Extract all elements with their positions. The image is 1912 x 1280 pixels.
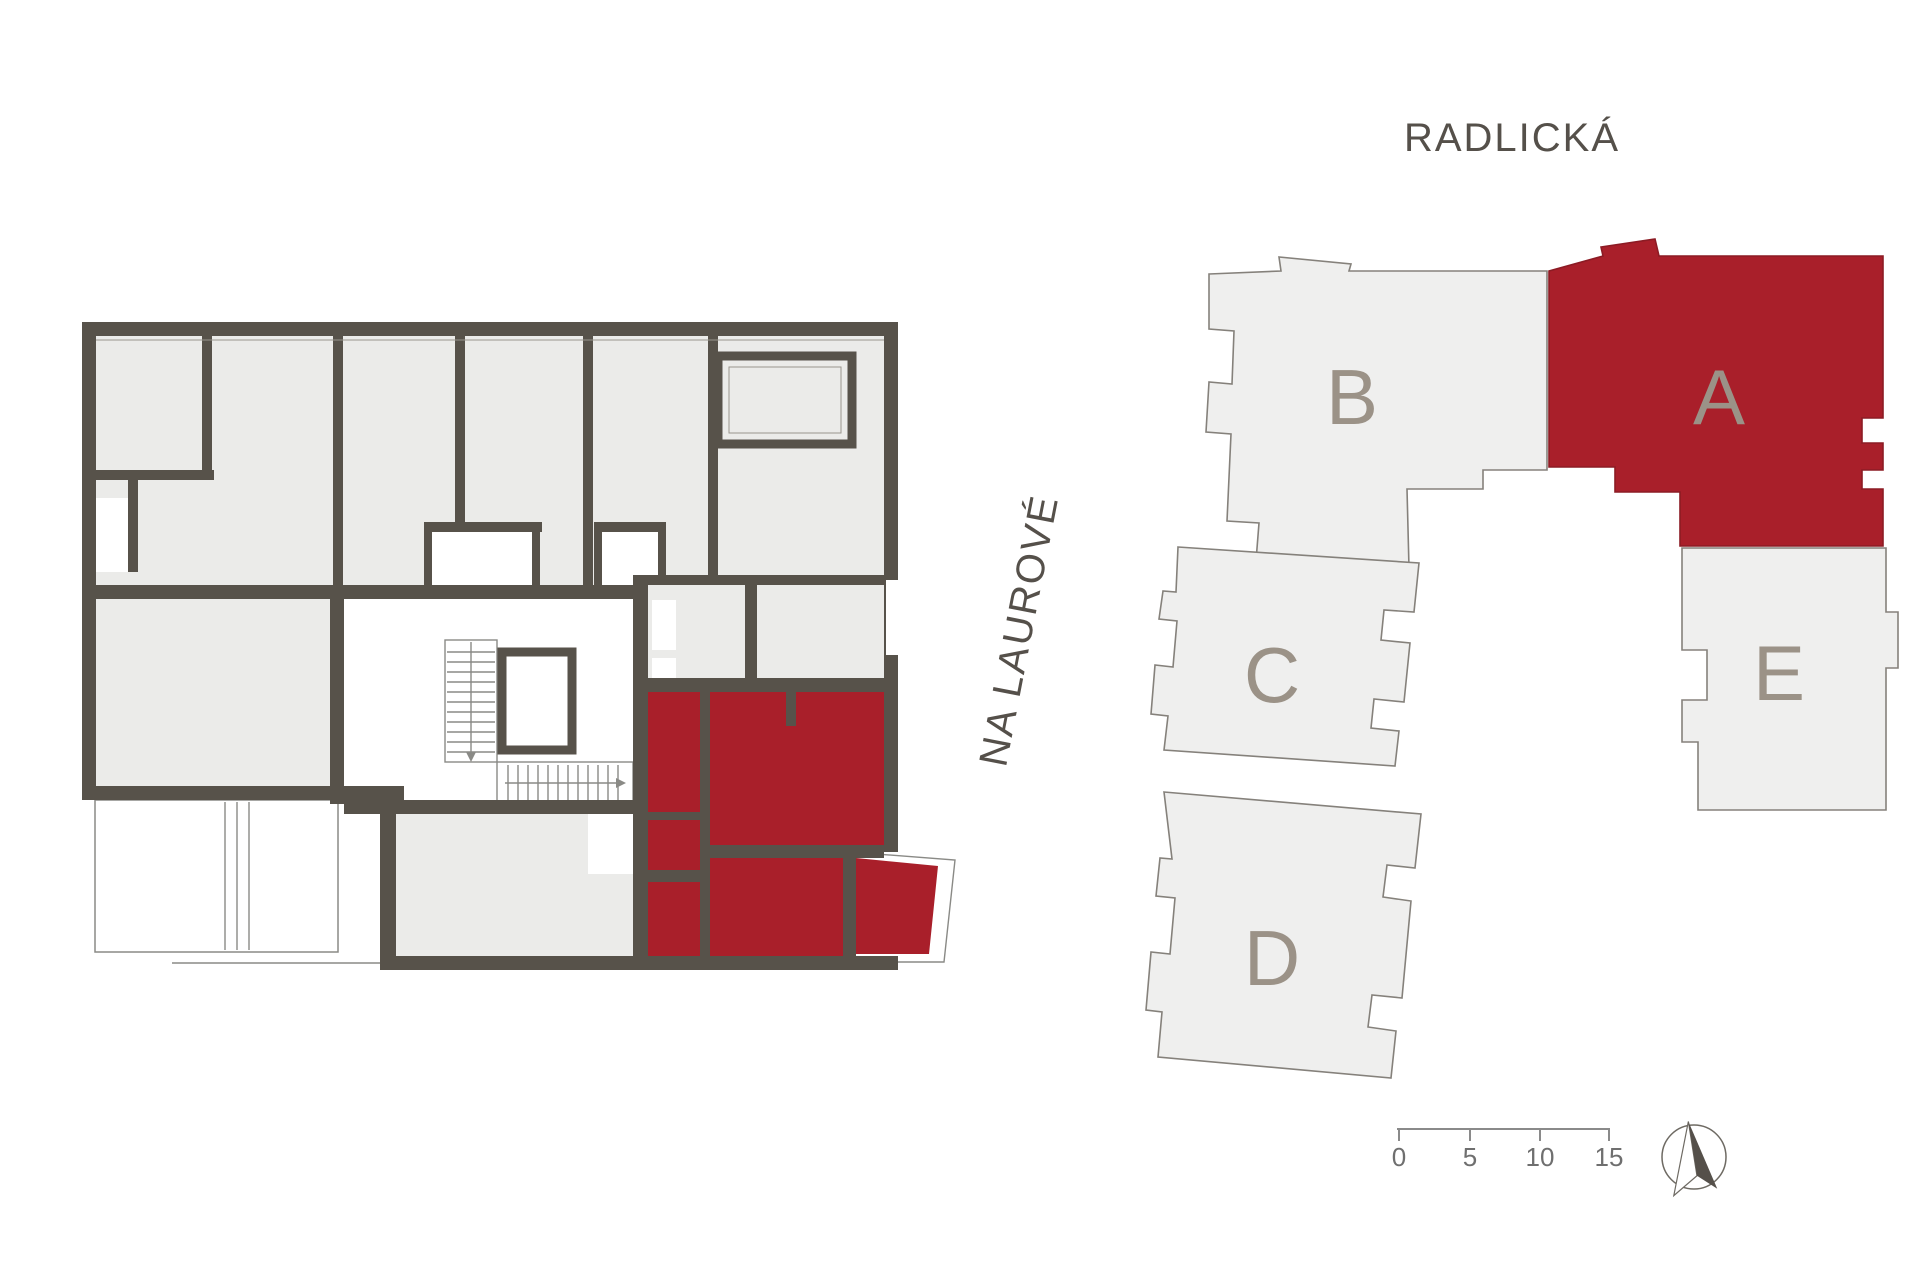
site-overview: A B C D E — [1146, 239, 1898, 1078]
site-block-a-label: A — [1693, 353, 1745, 441]
highlighted-unit[interactable] — [648, 692, 955, 962]
scale-tick-5: 5 — [1463, 1142, 1477, 1172]
north-arrow-icon — [1662, 1119, 1726, 1196]
scale-bar: 0 5 10 15 — [1392, 1129, 1624, 1172]
scale-tick-0: 0 — [1392, 1142, 1406, 1172]
street-label-radlicka: RADLICKÁ — [1404, 115, 1620, 160]
plan-canvas: A B C D E RADLICKÁ NA LAUROVÉ 0 5 10 15 — [0, 0, 1912, 1280]
site-block-b-label: B — [1326, 353, 1378, 441]
site-block-c-label: C — [1244, 631, 1300, 719]
site-block-d-label: D — [1244, 914, 1300, 1002]
scale-tick-15: 15 — [1595, 1142, 1624, 1172]
floor-plan — [75, 322, 955, 970]
site-block-e-label: E — [1753, 629, 1805, 717]
highlighted-balcony — [856, 858, 938, 954]
page: A B C D E RADLICKÁ NA LAUROVÉ 0 5 10 15 — [0, 0, 1912, 1280]
street-label-na-laurove: NA LAUROVÉ — [970, 491, 1067, 770]
scale-tick-10: 10 — [1526, 1142, 1555, 1172]
